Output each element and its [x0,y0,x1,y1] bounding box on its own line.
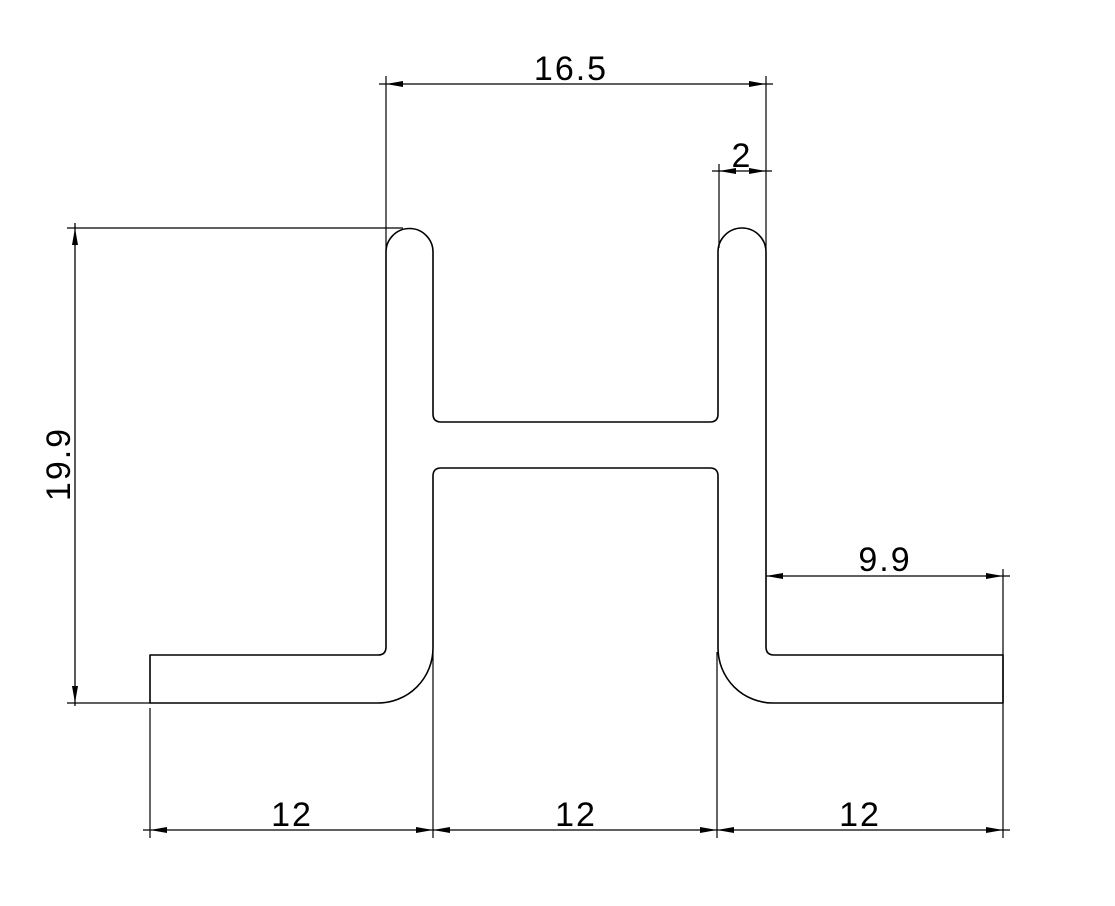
arrowhead-right [749,81,766,87]
dimension-wall-thickness: 2 [712,137,772,248]
dimension-value-bottom-left: 12 [271,796,313,834]
arrowhead-right-span-right [986,827,1003,833]
dimension-value-bottom-right: 12 [839,796,881,834]
drawing-area: 16.5 2 19.9 9.9 [0,0,1115,906]
arrowhead-top [72,228,78,245]
arrowhead-bottom [72,686,78,703]
dimension-bottom-widths: 12 12 12 [143,652,1010,838]
dimension-value-overall-height: 19.9 [40,427,78,501]
arrowhead-left-span-left [150,827,167,833]
arrowhead-mid-span-right [700,827,717,833]
dimension-top-width: 16.5 [379,50,773,250]
profile-outline [150,228,1003,703]
dimension-value-right-flange: 9.9 [858,541,911,579]
arrowhead-left-span-right [416,827,433,833]
cad-drawing-canvas: 16.5 2 19.9 9.9 [0,0,1115,906]
dimension-value-wall-thickness: 2 [732,137,753,175]
arrowhead-left [386,81,403,87]
arrowhead-mid-span-left [433,827,450,833]
dimension-value-top-width: 16.5 [534,50,608,88]
dimension-value-bottom-middle: 12 [555,796,597,834]
arrowhead-right [986,573,1003,579]
arrowhead-left [766,573,783,579]
dimension-overall-height: 19.9 [40,223,403,706]
dimension-right-flange: 9.9 [766,541,1010,838]
arrowhead-right-span-left [717,827,734,833]
